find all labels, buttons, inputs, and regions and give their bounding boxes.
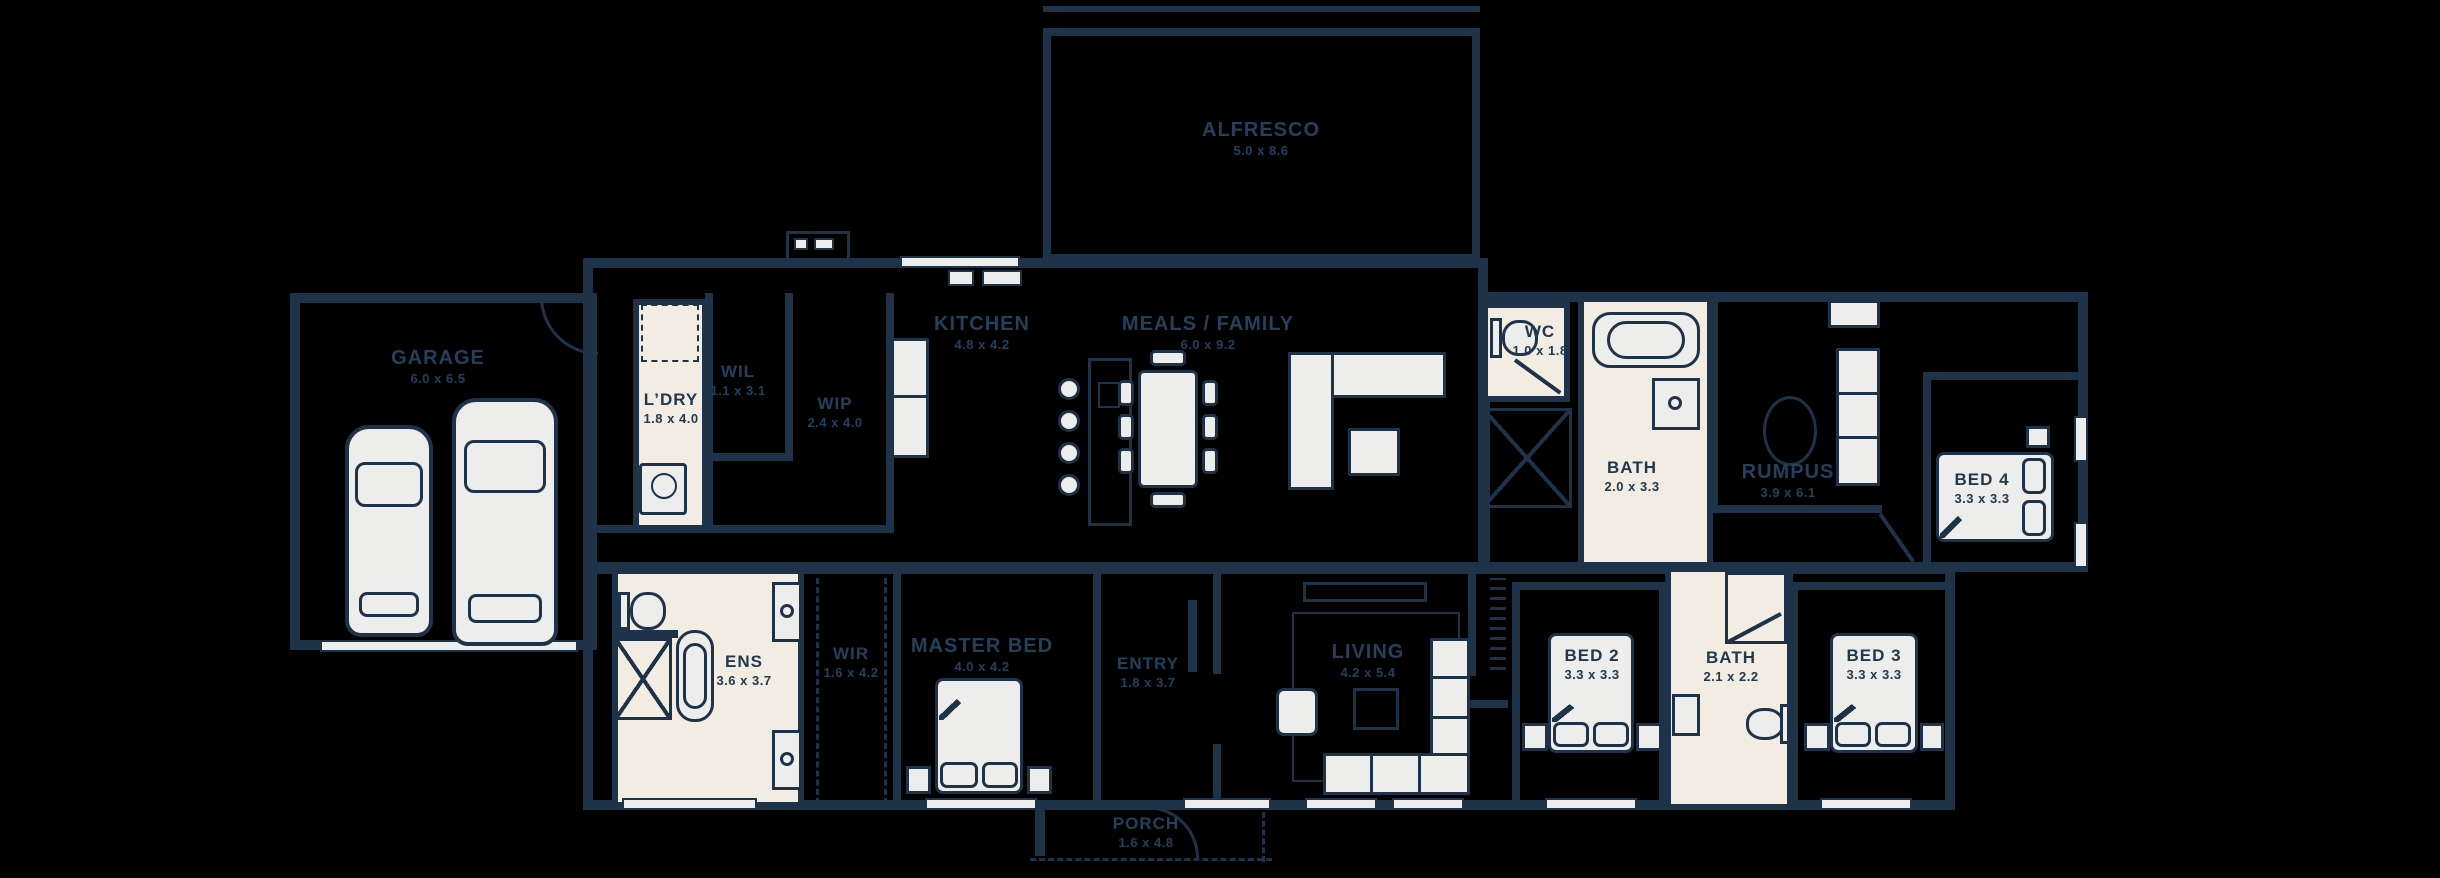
- bed3-pillow-2: [1875, 722, 1911, 747]
- wir-name: WIR: [823, 644, 878, 664]
- bed2-pillow-1: [1553, 722, 1589, 747]
- stool-2: [1058, 410, 1080, 432]
- porch-edge-dashed: [1030, 858, 1272, 861]
- stool-3: [1058, 442, 1080, 464]
- rumpus-dims: 3.9 x 6.1: [1742, 485, 1835, 501]
- bath1-label: BATH 2.0 x 3.3: [1604, 458, 1659, 495]
- garage-name: GARAGE: [391, 346, 485, 370]
- fridge-divider: [891, 395, 929, 398]
- rumpus-sofa-cushion-line-2: [1839, 436, 1877, 439]
- wir-dims: 1.6 x 4.2: [823, 665, 878, 681]
- bed4-side-table: [2026, 426, 2050, 448]
- washing-machine-drum: [651, 473, 677, 499]
- living-sofa-right-line-2: [1433, 716, 1467, 719]
- tv-unit: [1303, 582, 1427, 602]
- ens-vanity-2-basin: [780, 752, 794, 766]
- wip-label: WIP 2.4 x 4.0: [807, 394, 862, 431]
- window-bed3-bottom: [1820, 798, 1912, 810]
- wall-bed2-left: [1512, 582, 1520, 810]
- ens-dims: 3.6 x 3.7: [716, 673, 771, 689]
- entry-name: ENTRY: [1117, 654, 1179, 674]
- bed3-pillow-1: [1835, 722, 1871, 747]
- ens-toilet-tank: [618, 592, 630, 630]
- master-side-table-left: [906, 766, 931, 794]
- kitchen-dims: 4.8 x 4.2: [934, 337, 1030, 353]
- entry-label: ENTRY 1.8 x 3.7: [1117, 654, 1179, 691]
- wir-robe-left: [816, 578, 819, 804]
- living-label: LIVING 4.2 x 5.4: [1332, 640, 1405, 681]
- bbq-unit-1: [794, 238, 808, 250]
- bed3-label: BED 3 3.3 x 3.3: [1846, 646, 1901, 683]
- ens-shower: [614, 638, 672, 720]
- ldry-overhead-cupboard: [641, 304, 699, 362]
- entry-dims: 1.8 x 3.7: [1117, 675, 1179, 691]
- window-entry-bottom: [1183, 798, 1271, 810]
- wir-robe-right: [884, 578, 887, 804]
- wip-name: WIP: [807, 394, 862, 414]
- ens-vanity-1-basin: [780, 604, 794, 618]
- bed2-name: BED 2: [1564, 646, 1619, 666]
- bath2-vanity: [1672, 694, 1700, 736]
- bath1-shower: [1482, 408, 1572, 508]
- bed3-side-table-left: [1804, 723, 1830, 751]
- dining-chair-right-3: [1202, 448, 1218, 474]
- dining-chair-right-2: [1202, 414, 1218, 440]
- wir-label: WIR 1.6 x 4.2: [823, 644, 878, 681]
- ldry-dims: 1.8 x 4.0: [643, 411, 698, 427]
- car-2-rear: [468, 594, 543, 623]
- wc-name: WC: [1512, 322, 1567, 342]
- window-living-bottom-2: [1392, 798, 1464, 810]
- alfresco-name: ALFRESCO: [1202, 118, 1320, 142]
- porch-step-line: [1262, 812, 1265, 862]
- alfresco-slider-track: [1078, 254, 1463, 258]
- bbq-unit-2: [814, 238, 834, 250]
- window-living-bottom-1: [1305, 798, 1377, 810]
- ens-tub-basin: [683, 643, 707, 708]
- living-dims: 4.2 x 5.4: [1332, 665, 1405, 681]
- kitchen-name: KITCHEN: [934, 312, 1030, 336]
- oven: [982, 270, 1022, 286]
- bath1-vanity-basin: [1668, 396, 1682, 410]
- bath2-toilet-tank: [1780, 704, 1790, 744]
- window-master-bottom: [925, 798, 1037, 810]
- family-sofa-side-arm: [1288, 352, 1334, 490]
- bed2-label: BED 2 3.3 x 3.3: [1564, 646, 1619, 683]
- wall-bed4-left: [1923, 372, 1931, 568]
- bath2-toilet-bowl: [1746, 708, 1784, 740]
- dining-chair-left-1: [1118, 380, 1134, 406]
- wall-bed4-top: [1923, 372, 2088, 380]
- wall-bed2-top: [1512, 582, 1667, 590]
- bed4-pillow-1: [2022, 458, 2046, 494]
- bed4-label: BED 4 3.3 x 3.3: [1954, 470, 2009, 507]
- ldry-name: L’DRY: [643, 390, 698, 410]
- porch-name: PORCH: [1113, 814, 1179, 834]
- bath2-dims: 2.1 x 2.2: [1703, 669, 1758, 685]
- wall-master-right: [1093, 564, 1101, 810]
- wall-wil-bottom: [705, 453, 793, 461]
- floor-plan: GARAGE 6.0 x 6.5 ALFRESCO 5.0 x 8.6 L’DR…: [0, 0, 2440, 878]
- dining-chair-bottom: [1150, 492, 1186, 508]
- ldry-label: L’DRY 1.8 x 4.0: [643, 390, 698, 427]
- alfresco-eave-line: [1043, 6, 1480, 12]
- bed3-name: BED 3: [1846, 646, 1901, 666]
- wc-toilet-tank: [1490, 318, 1502, 358]
- stool-4: [1058, 474, 1080, 496]
- window-kitchen-top: [900, 256, 1020, 268]
- kitchen-label: KITCHEN 4.8 x 4.2: [934, 312, 1030, 353]
- rumpus-sofa: [1836, 348, 1880, 486]
- bed2-side-table-left: [1522, 723, 1548, 751]
- master-side-table-right: [1027, 766, 1052, 794]
- dining-chair-right-1: [1202, 380, 1218, 406]
- bed4-name: BED 4: [1954, 470, 2009, 490]
- ens-toilet-bowl: [630, 592, 666, 630]
- wall-entry-right-top: [1213, 564, 1221, 674]
- ens-tub: [676, 630, 714, 722]
- wip-dims: 2.4 x 4.0: [807, 415, 862, 431]
- ens-label: ENS 3.6 x 3.7: [716, 652, 771, 689]
- living-coffee-table: [1353, 688, 1399, 730]
- alfresco-dims: 5.0 x 8.6: [1202, 143, 1320, 159]
- car-1-rear: [359, 592, 420, 616]
- island-sink: [1098, 382, 1120, 408]
- bath2-shower: [1725, 572, 1787, 644]
- fridge: [891, 338, 929, 458]
- window-bed2-bottom: [1545, 798, 1637, 810]
- wall-entry-stub: [1188, 600, 1197, 672]
- bath1-tub-basin: [1607, 321, 1685, 359]
- living-sofa-bottom-line-1: [1370, 756, 1373, 792]
- bath1-tub: [1592, 312, 1700, 368]
- bed2-dims: 3.3 x 3.3: [1564, 667, 1619, 683]
- wc-label: WC 1.0 x 1.8: [1512, 322, 1567, 359]
- rumpus-sofa-cushion-line-1: [1839, 392, 1877, 395]
- meals-family-label: MEALS / FAMILY 6.0 x 9.2: [1122, 312, 1294, 353]
- family-sofa-ottoman: [1348, 428, 1400, 476]
- living-sofa-right-line-1: [1433, 676, 1467, 679]
- porch-label: PORCH 1.6 x 4.8: [1113, 814, 1179, 851]
- wil-dims: 1.1 x 3.1: [710, 383, 765, 399]
- porch-dims: 1.6 x 4.8: [1113, 835, 1179, 851]
- rumpus-table: [1763, 396, 1817, 466]
- wall-hall-stub: [1468, 700, 1508, 708]
- master-bed-name: MASTER BED: [911, 634, 1053, 658]
- porch-post-left: [1035, 810, 1045, 856]
- wall-wir-right: [893, 564, 901, 810]
- master-pillow-2: [982, 762, 1018, 788]
- garage-dims: 6.0 x 6.5: [391, 371, 485, 387]
- window-ens-bottom: [622, 798, 757, 810]
- meals-family-dims: 6.0 x 9.2: [1122, 337, 1294, 353]
- living-sofa-right: [1430, 638, 1470, 758]
- dining-chair-left-2: [1118, 414, 1134, 440]
- bed4-pillow-2: [2022, 500, 2046, 536]
- car-2: [452, 398, 558, 646]
- bath2-label: BATH 2.1 x 2.2: [1703, 648, 1758, 685]
- bed3-dims: 3.3 x 3.3: [1846, 667, 1901, 683]
- wall-wil-right: [785, 293, 793, 461]
- bath1-dims: 2.0 x 3.3: [1604, 479, 1659, 495]
- bed2-side-table-right: [1636, 723, 1662, 751]
- car-2-windshield: [464, 440, 546, 493]
- rumpus-cabinet: [1828, 300, 1880, 328]
- garage-label: GARAGE 6.0 x 6.5: [391, 346, 485, 387]
- car-1-windshield: [355, 462, 422, 507]
- master-pillow-1: [940, 762, 978, 788]
- car-1: [345, 425, 433, 637]
- cooktop: [948, 270, 974, 286]
- bed3-side-table-right: [1920, 723, 1944, 751]
- wil-name: WIL: [710, 362, 765, 382]
- alfresco-slider-door: [1120, 262, 1420, 266]
- wall-rumpus-bottom: [1710, 505, 1882, 513]
- ens-divider-wall: [612, 630, 678, 638]
- dining-table: [1138, 370, 1198, 488]
- bed4-dims: 3.3 x 3.3: [1954, 491, 2009, 507]
- bath2-name: BATH: [1703, 648, 1758, 668]
- master-bed-dims: 4.0 x 4.2: [911, 659, 1053, 675]
- wil-label: WIL 1.1 x 3.1: [710, 362, 765, 399]
- wc-dims: 1.0 x 1.8: [1512, 343, 1567, 359]
- living-armchair: [1276, 688, 1318, 736]
- wall-bed3-top: [1790, 582, 1953, 590]
- living-name: LIVING: [1332, 640, 1405, 664]
- rumpus-label: RUMPUS 3.9 x 6.1: [1742, 460, 1835, 501]
- linen-shelves-hatch: [1490, 578, 1506, 670]
- window-bed4-right-1: [2074, 416, 2088, 462]
- bed2-pillow-2: [1593, 722, 1629, 747]
- living-sofa-bottom: [1323, 753, 1470, 795]
- dining-chair-left-3: [1118, 448, 1134, 474]
- ens-name: ENS: [716, 652, 771, 672]
- stool-1: [1058, 378, 1080, 400]
- master-bed-label: MASTER BED 4.0 x 4.2: [911, 634, 1053, 675]
- alfresco-label: ALFRESCO 5.0 x 8.6: [1202, 118, 1320, 159]
- window-bed4-right-2: [2074, 522, 2088, 568]
- rumpus-name: RUMPUS: [1742, 460, 1835, 484]
- living-sofa-bottom-line-2: [1418, 756, 1421, 792]
- meals-family-name: MEALS / FAMILY: [1122, 312, 1294, 336]
- bath1-name: BATH: [1604, 458, 1659, 478]
